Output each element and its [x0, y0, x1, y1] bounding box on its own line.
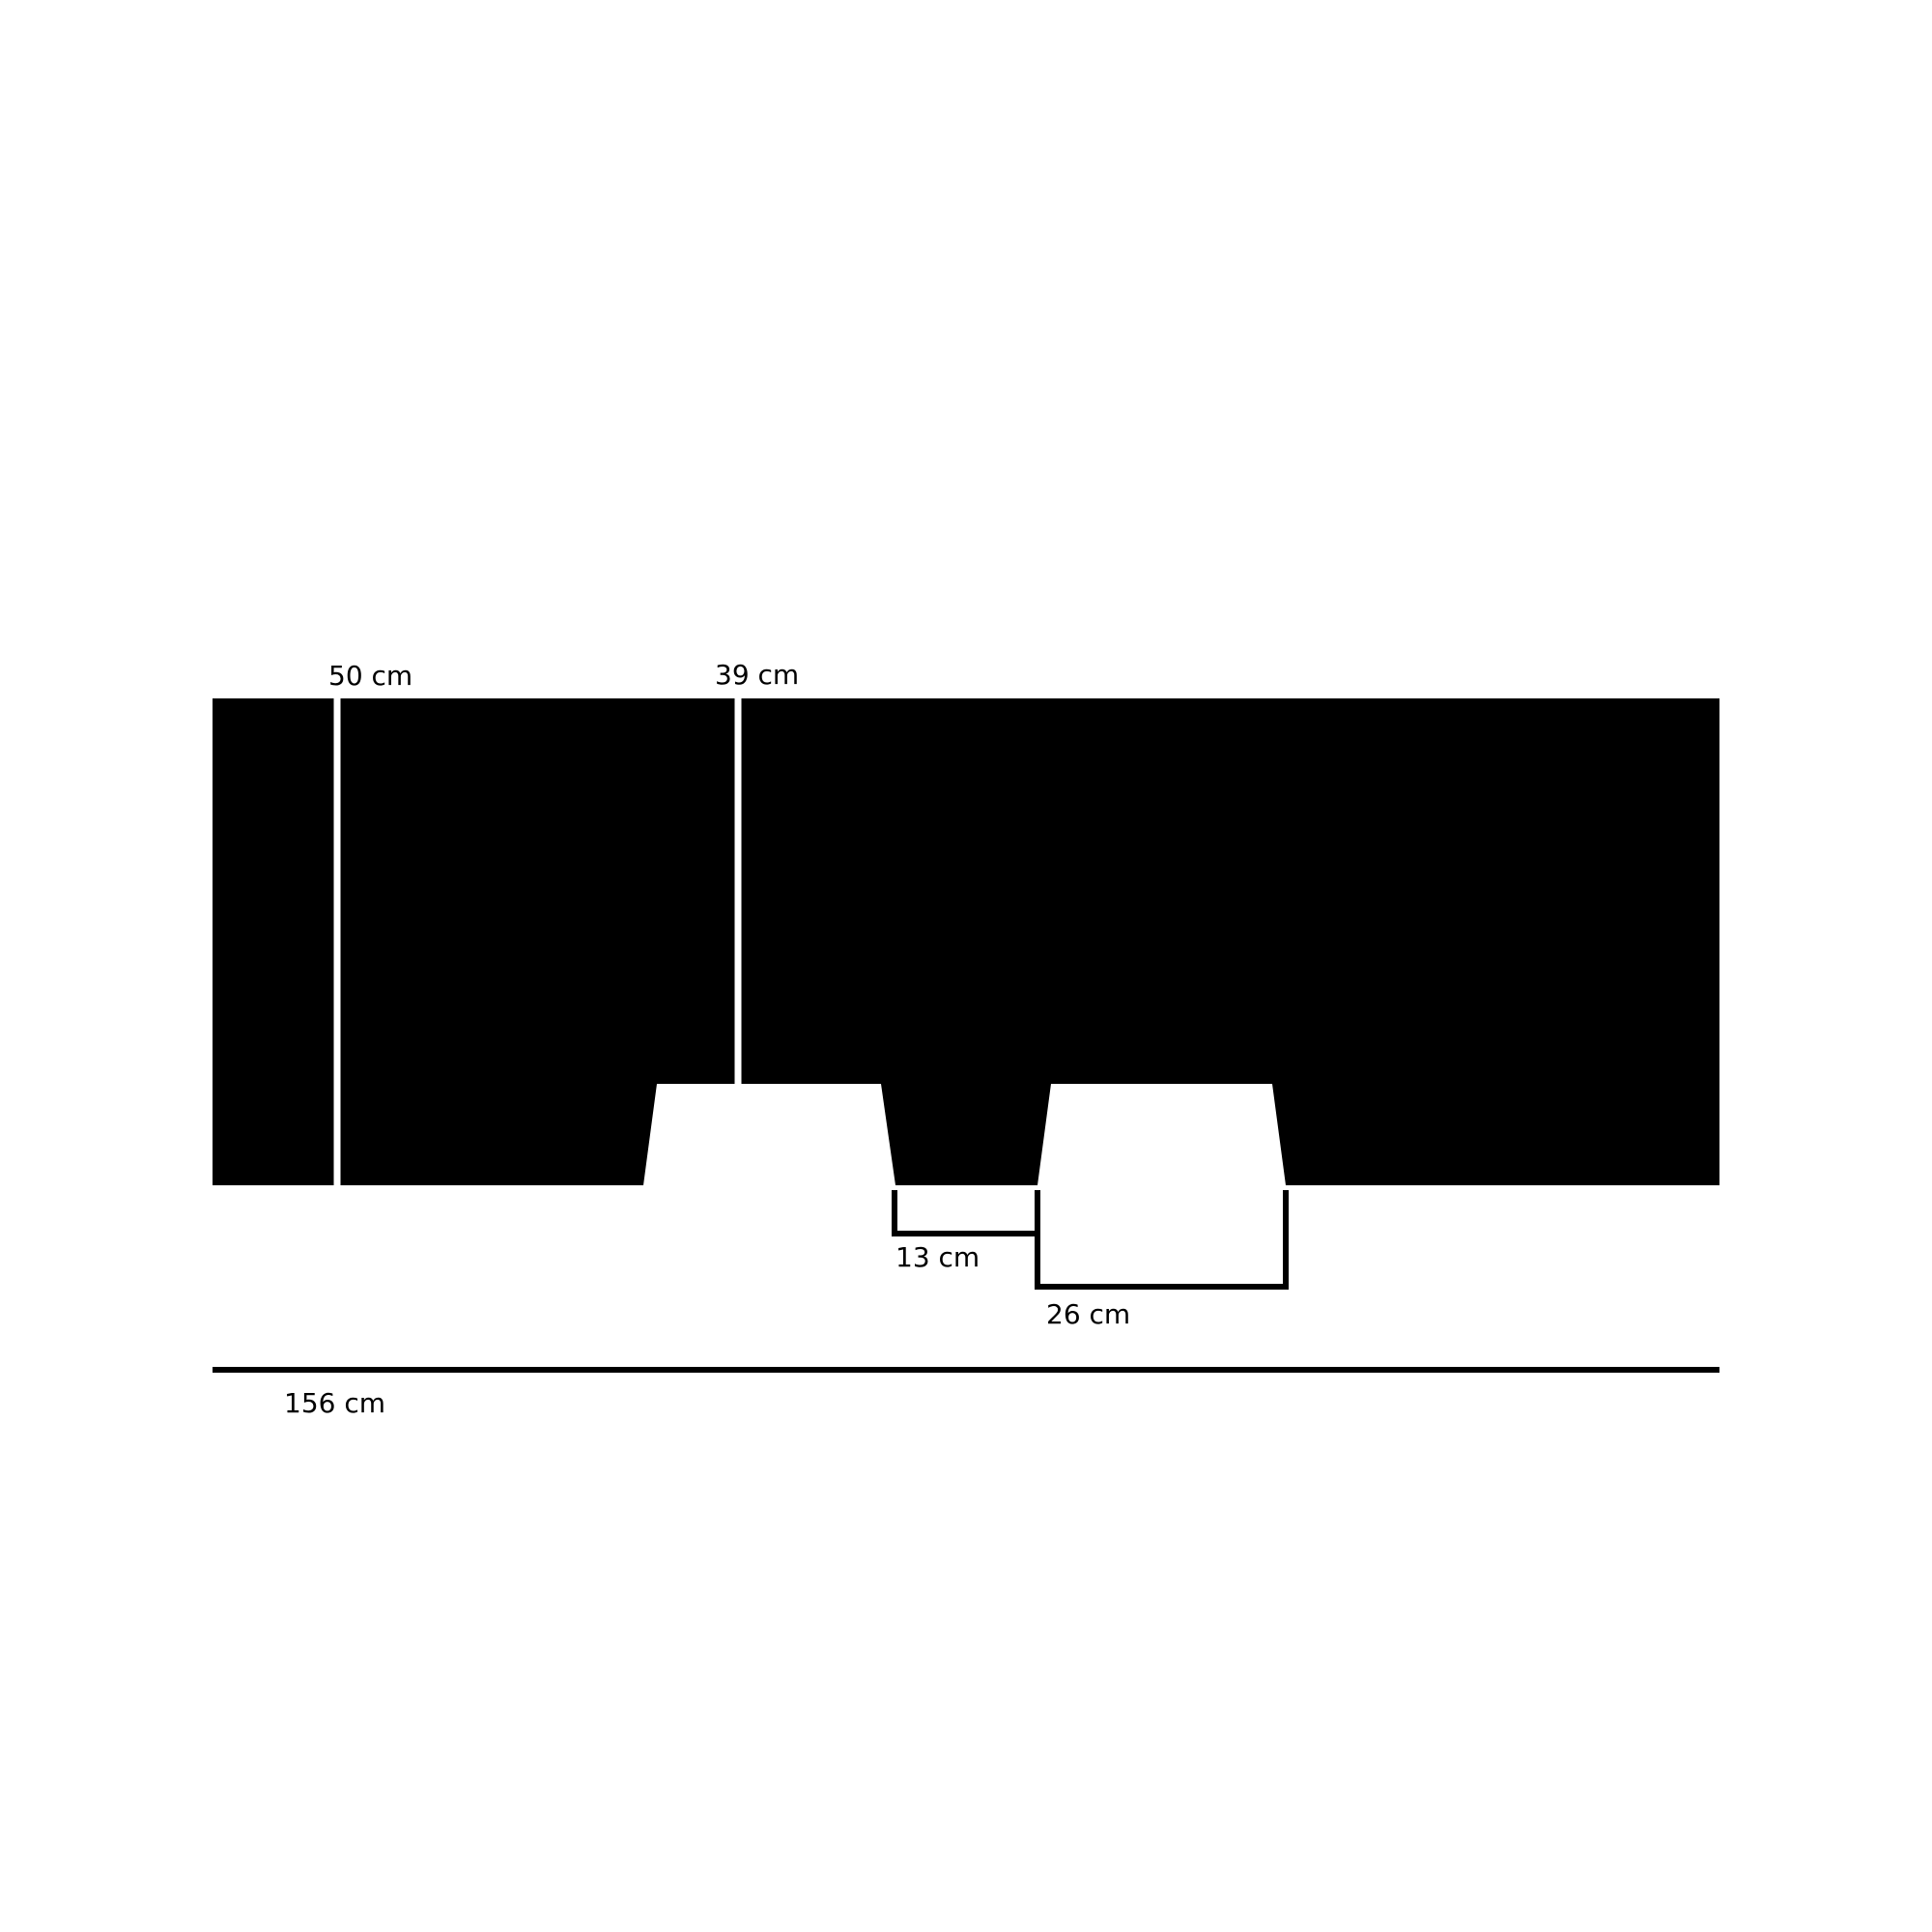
diagram-canvas: 50 cm 39 cm 13 cm 26 cm 156 cm [0, 0, 1932, 1932]
dimension-label-13cm: 13 cm [895, 1241, 980, 1273]
dimension-label-39cm: 39 cm [715, 659, 799, 691]
dimension-diagram: 50 cm 39 cm 13 cm 26 cm 156 cm [0, 0, 1932, 1932]
dimension-label-26cm: 26 cm [1046, 1298, 1130, 1330]
dimension-bracket-13cm [895, 1190, 1040, 1234]
dimension-label-50cm: 50 cm [328, 660, 412, 692]
dimension-label-156cm: 156 cm [284, 1387, 385, 1419]
dimension-bracket-26cm [1037, 1190, 1286, 1287]
panel-silhouette [213, 698, 1719, 1185]
